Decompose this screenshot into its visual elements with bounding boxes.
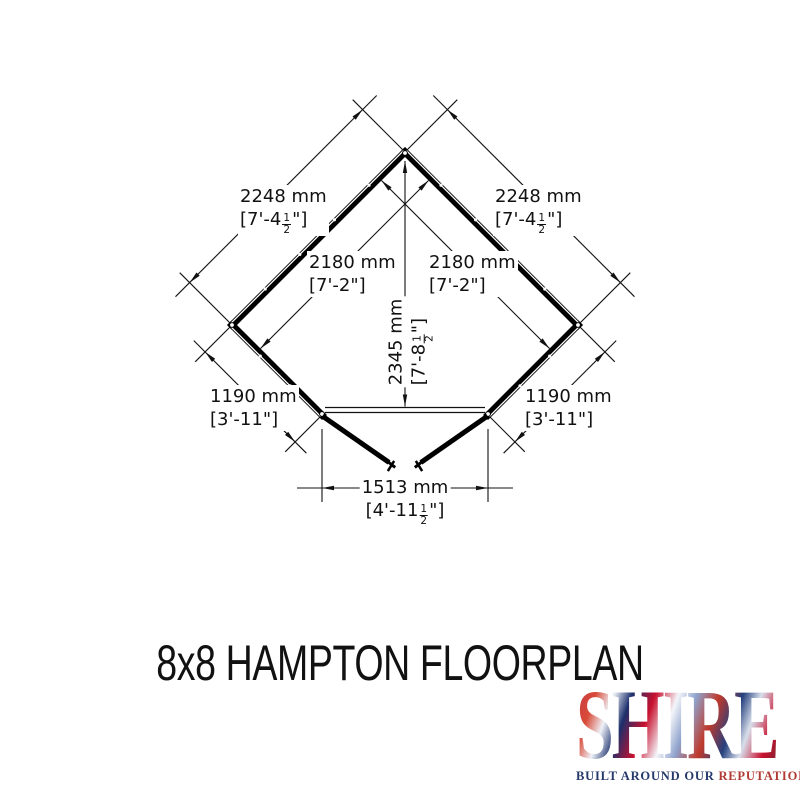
dimension-label-2180-right: 2180 mm [7'-2"] (427, 251, 518, 297)
dimension-ft-value: [3'-11"] (525, 408, 612, 431)
fraction: 12 (412, 334, 435, 343)
ext-line-corner-left (180, 273, 233, 326)
dimension-label-2345-height: 2345 mm [7'-812"] (385, 297, 436, 388)
dimension-ft-value: [3'-11"] (210, 408, 297, 431)
dimension-ft-value: [4'-1112"] (362, 499, 449, 527)
dimension-label-1190-left: 1190 mm [3'-11"] (208, 385, 299, 431)
dimension-label-2248-right: 2248 mm [7'-412"] (493, 185, 584, 236)
dimension-ft-value: [7'-412"] (240, 208, 327, 236)
fraction: 12 (537, 213, 546, 236)
dimension-ft-value: [7'-412"] (495, 208, 582, 236)
dimension-ft-value: [7'-2"] (309, 274, 396, 297)
fraction: 12 (419, 504, 428, 527)
dimension-label-2248-left: 2248 mm [7'-412"] (238, 185, 329, 236)
double-doors (325, 408, 486, 471)
dimension-label-2180-left: 2180 mm [7'-2"] (307, 251, 398, 297)
fraction: 12 (282, 213, 291, 236)
dimension-mm-value: 2345 mm (385, 299, 408, 386)
dimension-mm-value: 2180 mm (429, 251, 516, 274)
shire-logo: SHIRE BUILT AROUND OUR REPUTATION (576, 684, 798, 783)
dimension-ft-value: [7'-2"] (429, 274, 516, 297)
ext-line-1190-left-a (195, 327, 230, 362)
door-leaf-left (325, 418, 388, 462)
dimension-mm-value: 2180 mm (309, 251, 396, 274)
door-leaf-right (423, 418, 486, 462)
wall-upper-left (232, 152, 405, 325)
floorplan-page: 2248 mm [7'-412"] 2248 mm [7'-412"] 2180… (0, 0, 800, 800)
ext-line-corner-right (577, 273, 630, 326)
dimension-ft-value: [7'-812"] (408, 299, 436, 386)
dimension-mm-value: 1513 mm (362, 476, 449, 499)
dimension-mm-value: 2248 mm (240, 185, 327, 208)
ext-line-1190-right-b (490, 417, 525, 452)
dimension-label-1190-right: 1190 mm [3'-11"] (523, 385, 614, 431)
dimension-label-1513-door: 1513 mm [4'-1112"] (360, 476, 451, 527)
shire-logo-wordmark: SHIRE (576, 684, 777, 766)
ext-line-1190-right-a (580, 327, 615, 362)
dimension-mm-value: 2248 mm (495, 185, 582, 208)
dimension-mm-value: 1190 mm (525, 385, 612, 408)
dimension-mm-value: 1190 mm (210, 385, 297, 408)
